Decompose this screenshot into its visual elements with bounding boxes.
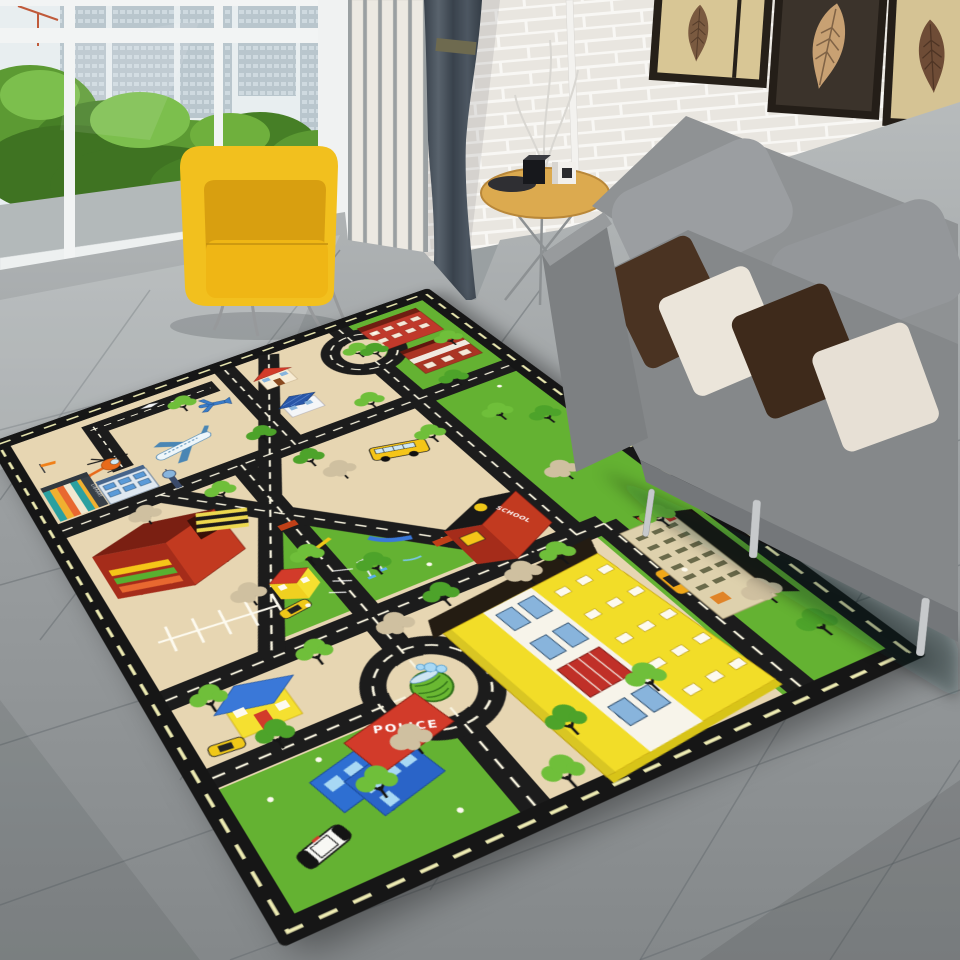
art-frame-2 xyxy=(767,0,888,120)
slatted-screen xyxy=(348,0,428,262)
white-cube xyxy=(552,162,576,184)
armchair-cushion xyxy=(206,240,328,298)
art-frame-1 xyxy=(649,0,773,88)
